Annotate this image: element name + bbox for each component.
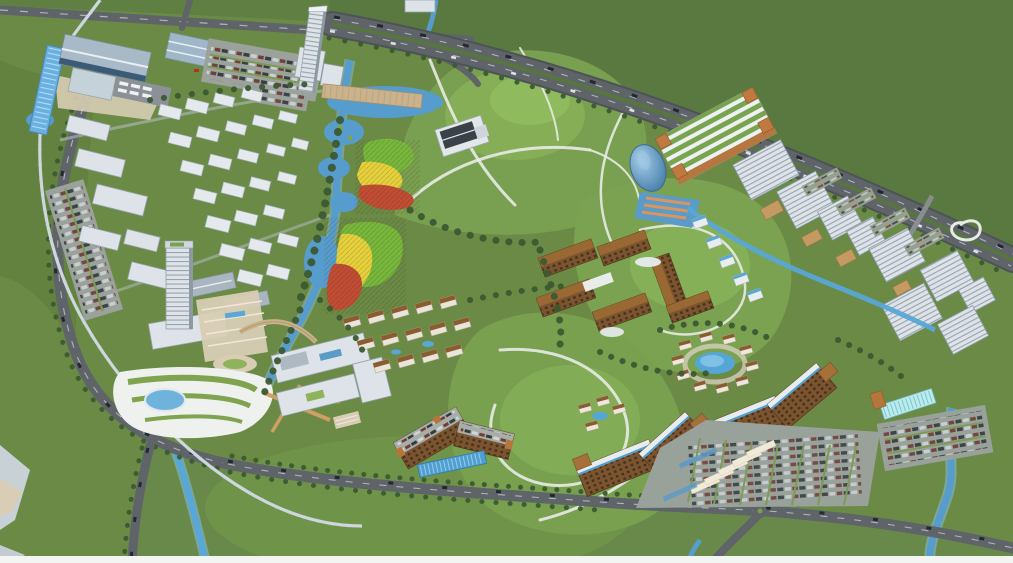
tower-south-shaft <box>165 241 193 329</box>
masterplan-svg <box>0 0 1013 563</box>
terrace-patch-south <box>324 218 406 314</box>
park-pond <box>145 389 185 411</box>
terrace-patch-north <box>354 139 420 214</box>
masterplan-rendering <box>0 0 1013 563</box>
bottom-border <box>0 556 1013 563</box>
